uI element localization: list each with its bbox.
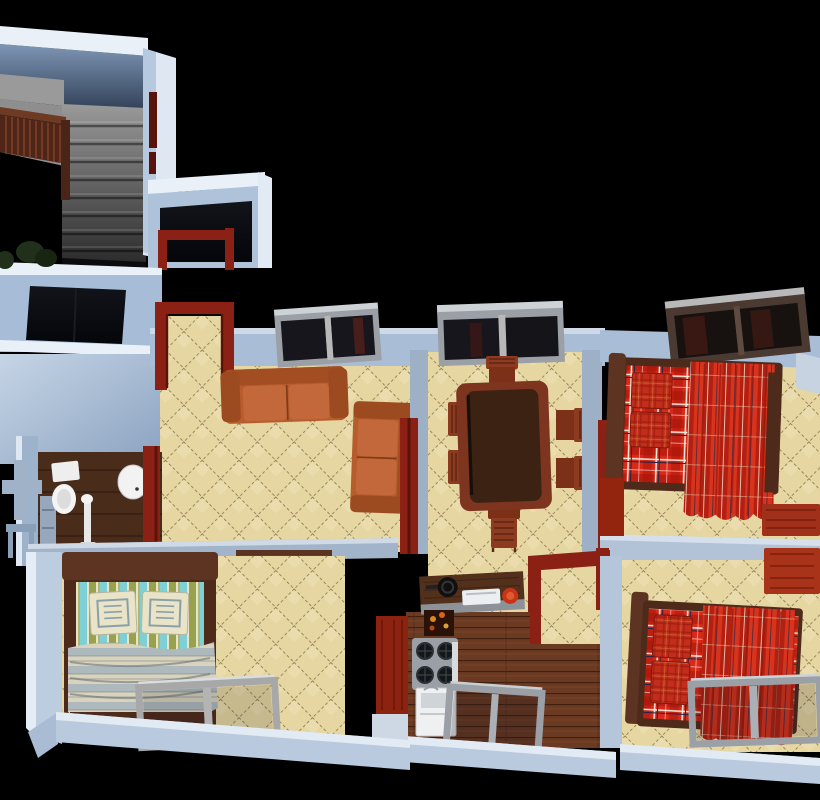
- pillow: [141, 591, 188, 635]
- wardrobe: [764, 548, 820, 594]
- floorplan-render: [0, 0, 820, 800]
- food-tray: [424, 610, 454, 636]
- pillow: [89, 591, 137, 635]
- bedroom-bottom-right: [600, 548, 820, 784]
- red-frame-slab: [600, 478, 624, 536]
- entry-room: [148, 172, 272, 270]
- sink-tray: [462, 588, 501, 605]
- pillow: [652, 615, 692, 659]
- kitchen-counter: [419, 571, 525, 614]
- entry-room-outer-edge: [258, 172, 272, 268]
- stair-slit-window-2: [149, 152, 156, 174]
- bedroom-bl-outer-edge: [26, 552, 36, 738]
- sofa-horizontal: [220, 366, 349, 424]
- railing-post: [61, 120, 70, 200]
- bedroom-tr-corner-block: [796, 352, 820, 394]
- floorplan-svg: [0, 0, 820, 800]
- red-cabinet: [376, 616, 408, 714]
- headboard: [62, 552, 218, 580]
- dark-room: [0, 262, 163, 464]
- stair-slit-window: [149, 92, 157, 148]
- living-window: [274, 302, 382, 367]
- stair-main-flight: [62, 104, 146, 264]
- pillow: [650, 661, 690, 705]
- dining-table: [456, 380, 552, 511]
- pillow: [630, 412, 671, 448]
- bedroom-br-left-wall: [600, 556, 622, 748]
- pillow: [631, 373, 672, 409]
- entry-doorway-tile: [160, 316, 230, 388]
